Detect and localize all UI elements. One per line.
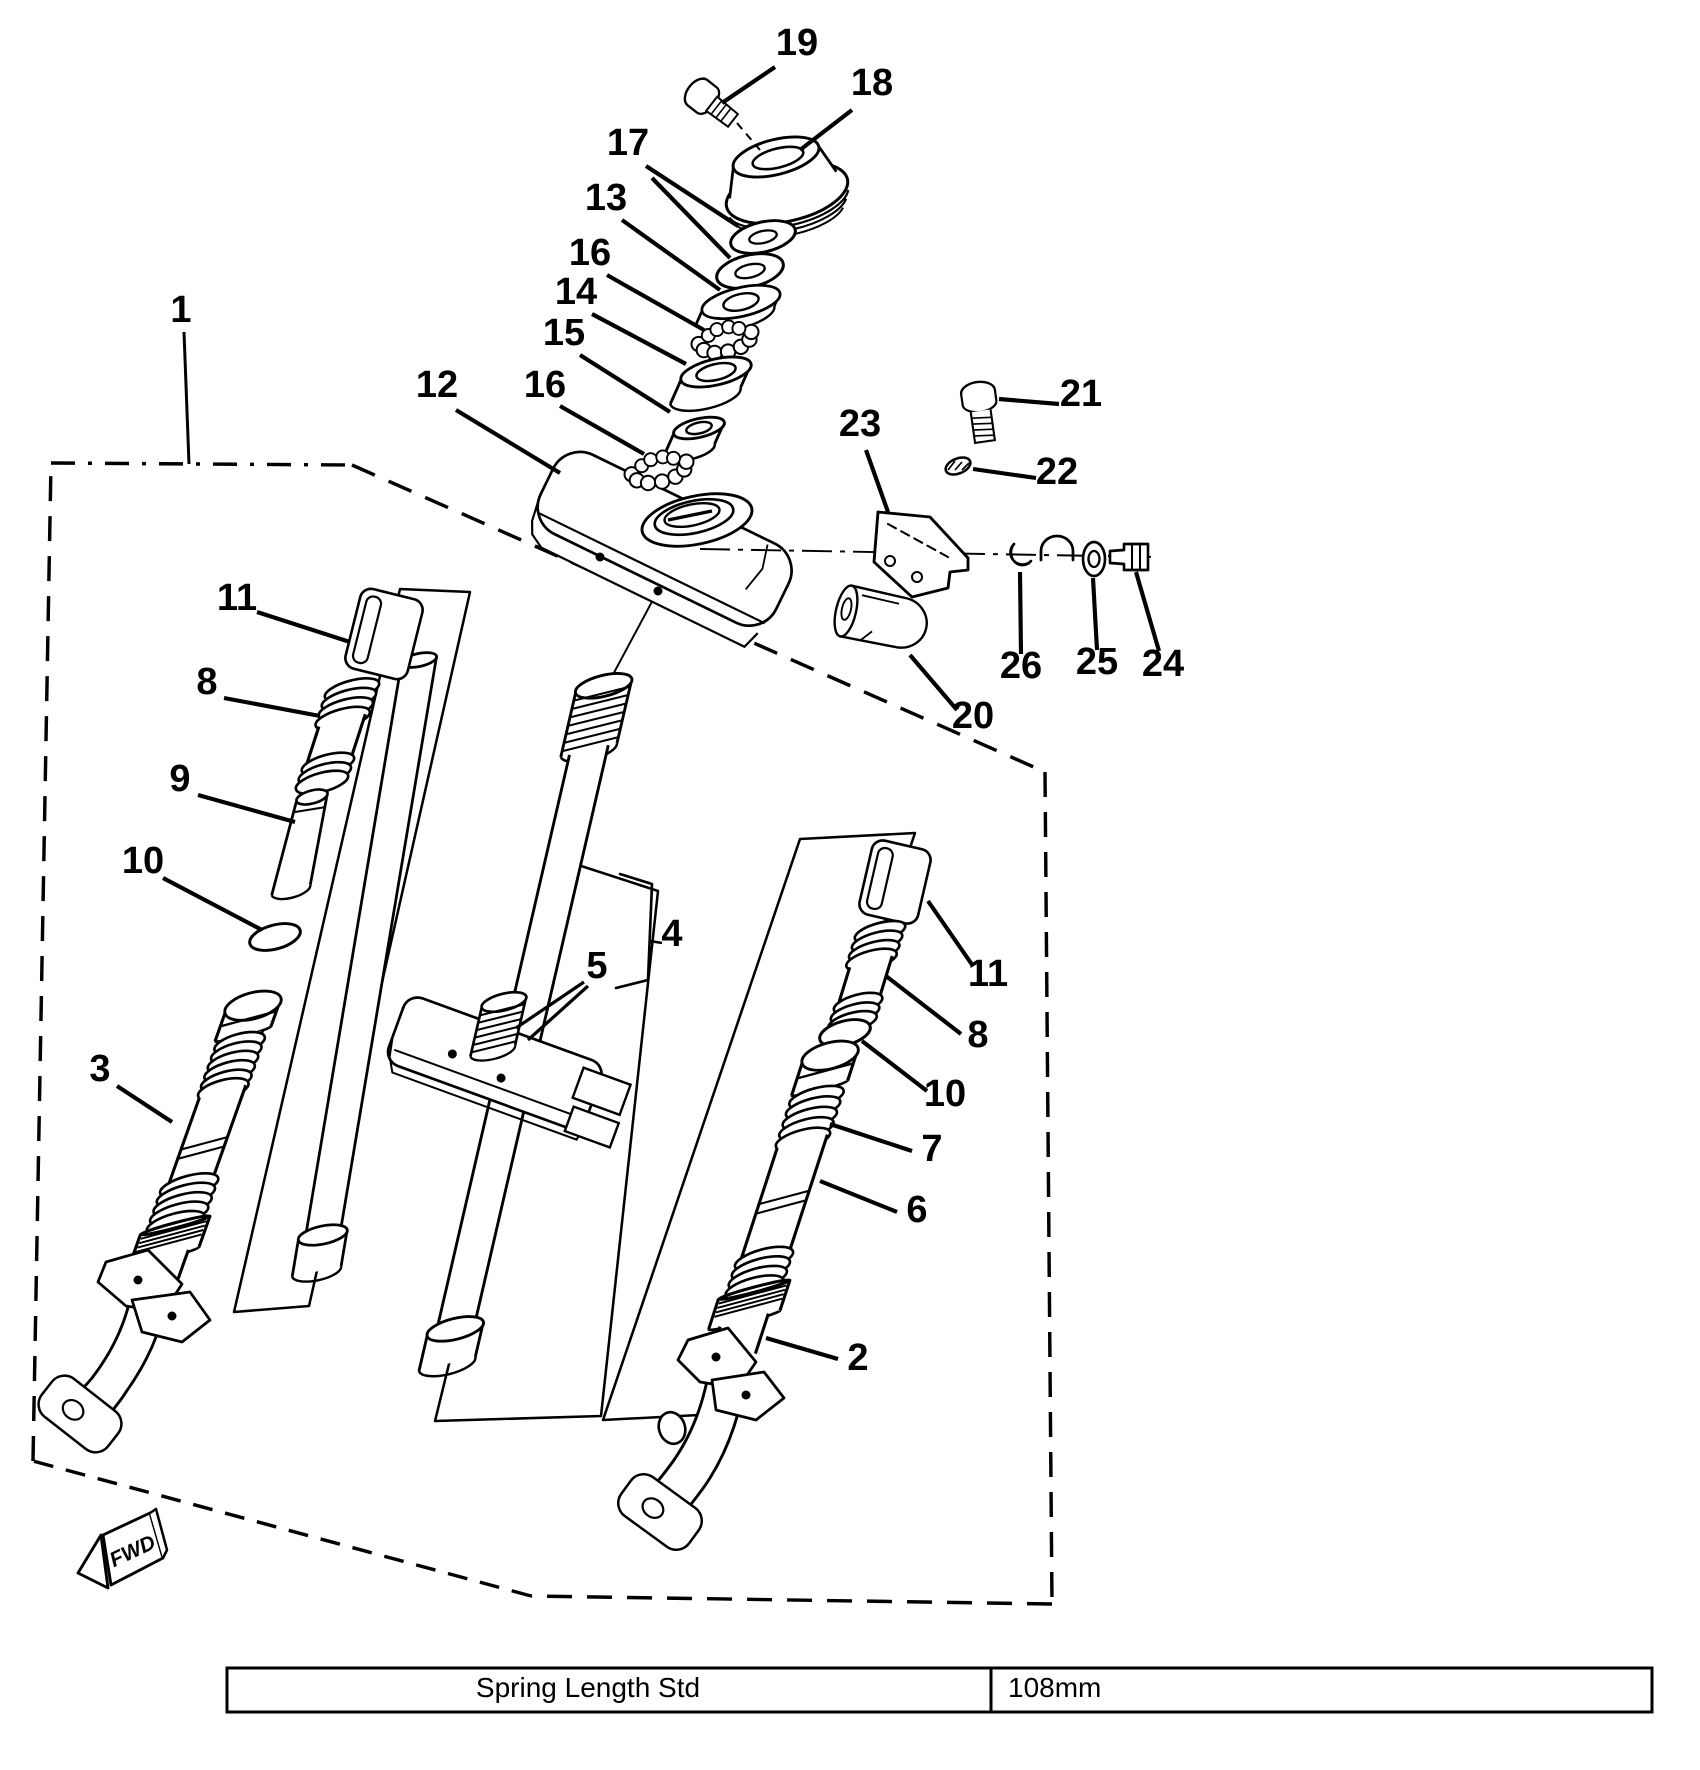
svg-text:24: 24 xyxy=(1142,643,1184,685)
svg-text:Spring Length Std: Spring Length Std xyxy=(476,1672,700,1703)
svg-text:15: 15 xyxy=(543,312,585,354)
svg-text:16: 16 xyxy=(524,364,566,406)
svg-text:2: 2 xyxy=(847,1337,868,1379)
svg-text:8: 8 xyxy=(967,1014,988,1056)
svg-text:10: 10 xyxy=(122,840,164,882)
svg-text:5: 5 xyxy=(586,945,607,987)
svg-text:8: 8 xyxy=(196,661,217,703)
svg-text:1: 1 xyxy=(170,289,191,331)
svg-text:7: 7 xyxy=(921,1128,942,1170)
svg-text:14: 14 xyxy=(555,271,597,313)
svg-text:22: 22 xyxy=(1036,451,1078,493)
svg-text:21: 21 xyxy=(1060,373,1102,415)
svg-text:16: 16 xyxy=(569,232,611,274)
svg-text:12: 12 xyxy=(416,364,458,406)
svg-text:11: 11 xyxy=(217,577,257,619)
svg-text:17: 17 xyxy=(607,122,649,164)
svg-text:19: 19 xyxy=(776,22,818,64)
svg-text:3: 3 xyxy=(89,1048,110,1090)
svg-text:10: 10 xyxy=(924,1073,966,1115)
svg-text:11: 11 xyxy=(968,953,1008,995)
svg-text:20: 20 xyxy=(952,695,994,737)
svg-text:23: 23 xyxy=(839,403,881,445)
svg-text:108mm: 108mm xyxy=(1008,1672,1101,1703)
svg-text:18: 18 xyxy=(851,62,893,104)
svg-text:13: 13 xyxy=(585,177,627,219)
svg-text:6: 6 xyxy=(906,1189,927,1231)
svg-text:9: 9 xyxy=(169,758,190,800)
svg-text:4: 4 xyxy=(661,913,682,955)
